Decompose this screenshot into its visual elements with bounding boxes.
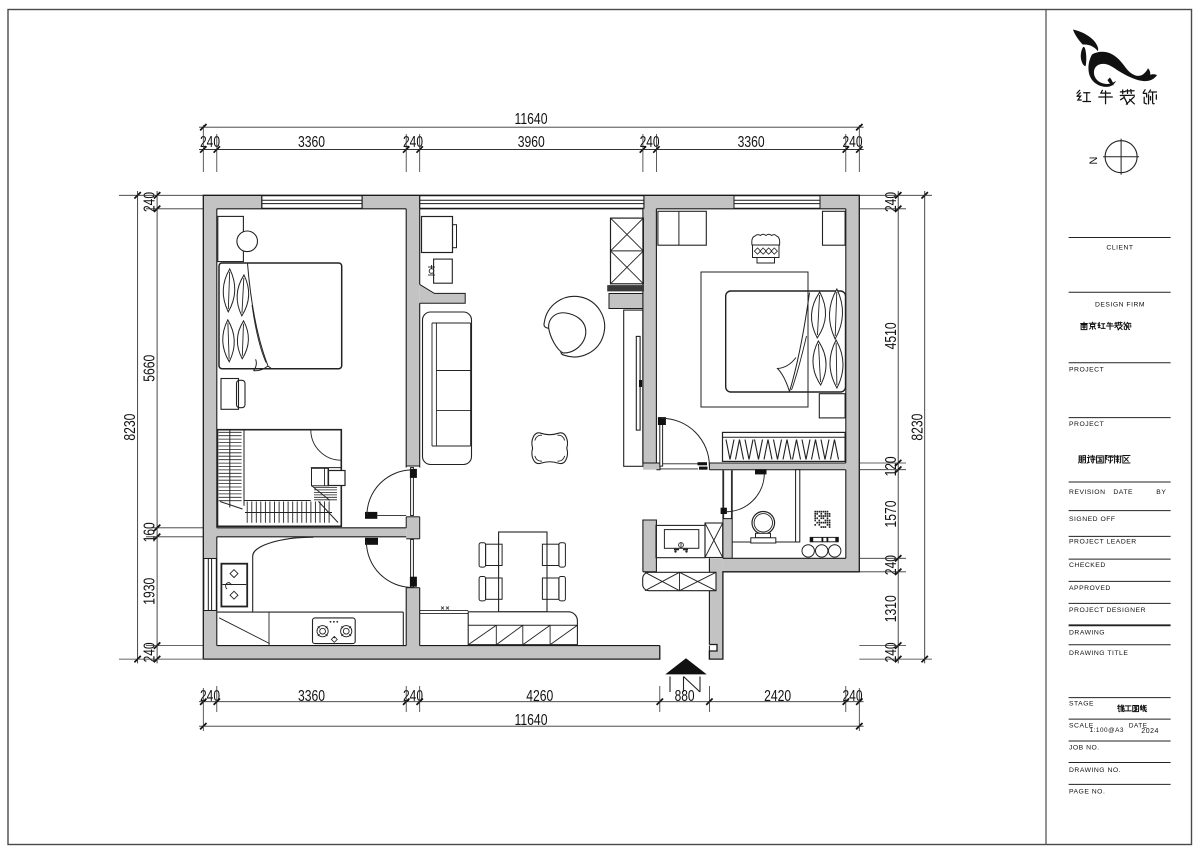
svg-text:2420: 2420: [764, 688, 791, 705]
svg-text:8230: 8230: [122, 413, 139, 440]
svg-text:5660: 5660: [142, 355, 159, 382]
svg-text:APPROVED: APPROVED: [1069, 585, 1111, 592]
svg-text:PAGE NO.: PAGE NO.: [1069, 789, 1105, 796]
svg-text:DRAWING TITLE: DRAWING TITLE: [1069, 650, 1128, 657]
svg-text:CLIENT: CLIENT: [1106, 245, 1133, 252]
svg-text:SIGNED OFF: SIGNED OFF: [1069, 516, 1116, 523]
svg-text:1570: 1570: [883, 500, 900, 527]
svg-text:PROJECT: PROJECT: [1069, 421, 1104, 428]
svg-text:11640: 11640: [515, 712, 548, 729]
svg-text:DRAWING NO.: DRAWING NO.: [1069, 767, 1121, 774]
svg-text:PROJECT LEADER: PROJECT LEADER: [1069, 539, 1137, 546]
svg-text:PROJECT: PROJECT: [1069, 367, 1104, 374]
svg-text:3360: 3360: [738, 134, 765, 151]
svg-text:PROJECT DESIGNER: PROJECT DESIGNER: [1069, 607, 1146, 614]
svg-text:880: 880: [675, 688, 695, 705]
svg-text:1310: 1310: [883, 595, 900, 622]
svg-text:DATE: DATE: [1113, 489, 1133, 496]
svg-text:STAGE: STAGE: [1069, 701, 1094, 708]
svg-text:CHECKED: CHECKED: [1069, 562, 1106, 569]
svg-text:160: 160: [142, 522, 159, 542]
svg-text:8230: 8230: [909, 413, 926, 440]
svg-text:3360: 3360: [298, 688, 325, 705]
svg-text:BY: BY: [1156, 489, 1166, 496]
svg-text:1:100@A3: 1:100@A3: [1090, 727, 1124, 734]
svg-text:DRAWING: DRAWING: [1069, 630, 1105, 637]
svg-text:1930: 1930: [142, 577, 159, 604]
svg-text:3360: 3360: [298, 134, 325, 151]
svg-text:N: N: [1088, 156, 1100, 164]
svg-text:120: 120: [883, 456, 900, 476]
svg-text:4260: 4260: [526, 688, 553, 705]
svg-text:2024: 2024: [1141, 728, 1159, 735]
svg-text:4510: 4510: [883, 322, 900, 349]
svg-text:REVISION: REVISION: [1069, 489, 1105, 496]
svg-text:3960: 3960: [518, 134, 545, 151]
svg-text:11640: 11640: [515, 111, 548, 128]
svg-text:DESIGN FIRM: DESIGN FIRM: [1095, 302, 1145, 309]
svg-text:JOB NO.: JOB NO.: [1069, 745, 1100, 752]
